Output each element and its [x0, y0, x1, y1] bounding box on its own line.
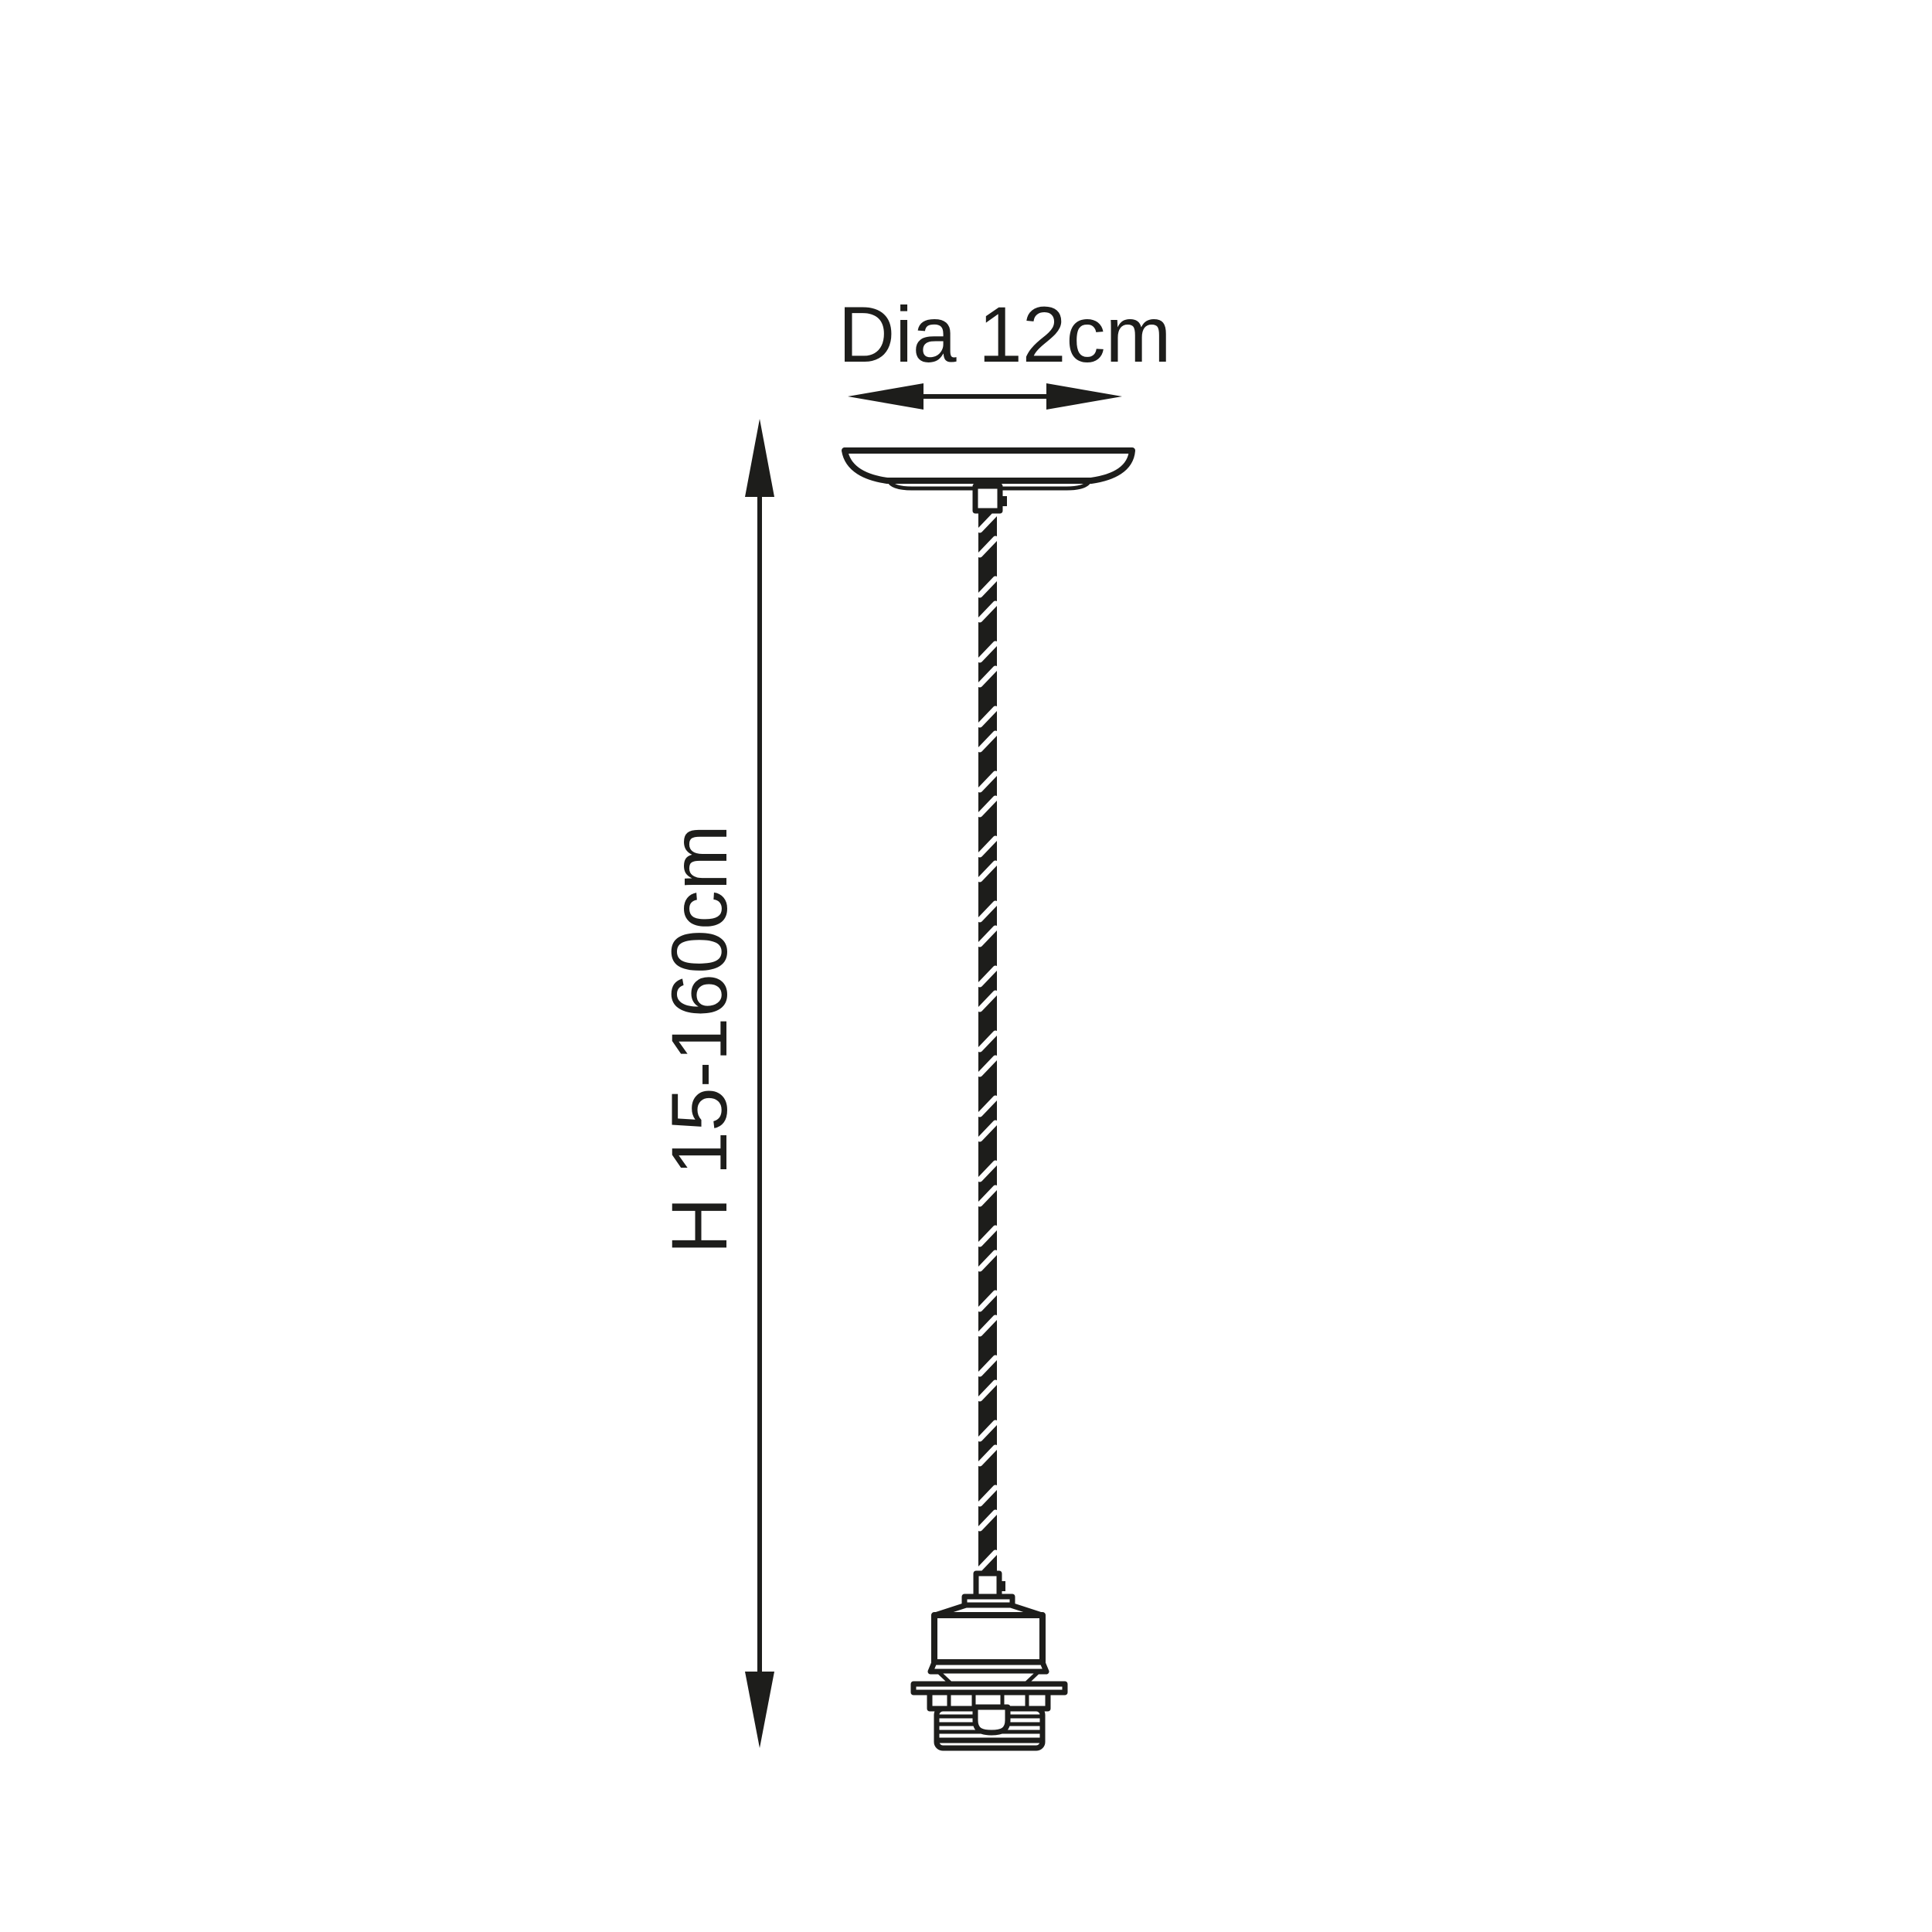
arrow-up-icon	[745, 419, 774, 497]
socket-cutout	[975, 1707, 1008, 1733]
arrow-right-icon	[1046, 383, 1122, 410]
cord-grip-box	[975, 486, 1000, 511]
threaded-section	[937, 1707, 1043, 1748]
holder-body	[934, 1615, 1043, 1662]
ceiling-canopy	[845, 451, 1132, 488]
arrow-down-icon	[745, 1672, 774, 1748]
bottom-cord-grip-box	[976, 1573, 999, 1597]
canopy-dish	[845, 451, 1132, 481]
cord-grip-tab	[998, 496, 1007, 506]
pendant-dimension-diagram: Dia 12cm	[0, 0, 1932, 1932]
height-dimension: H 15-160cm	[655, 419, 774, 1748]
diagram-drawing: Dia 12cm	[0, 0, 1932, 1932]
arrow-left-icon	[848, 383, 923, 410]
bottom-cord-grip-tab	[997, 1581, 1005, 1591]
top-cord-grip	[975, 486, 1007, 511]
width-dimension: Dia 12cm	[838, 291, 1172, 410]
diameter-label: Dia 12cm	[838, 291, 1172, 379]
lampholder	[913, 1573, 1065, 1748]
height-label: H 15-160cm	[655, 825, 743, 1254]
twisted-cable	[978, 507, 997, 1577]
cable-rope	[978, 507, 997, 1577]
